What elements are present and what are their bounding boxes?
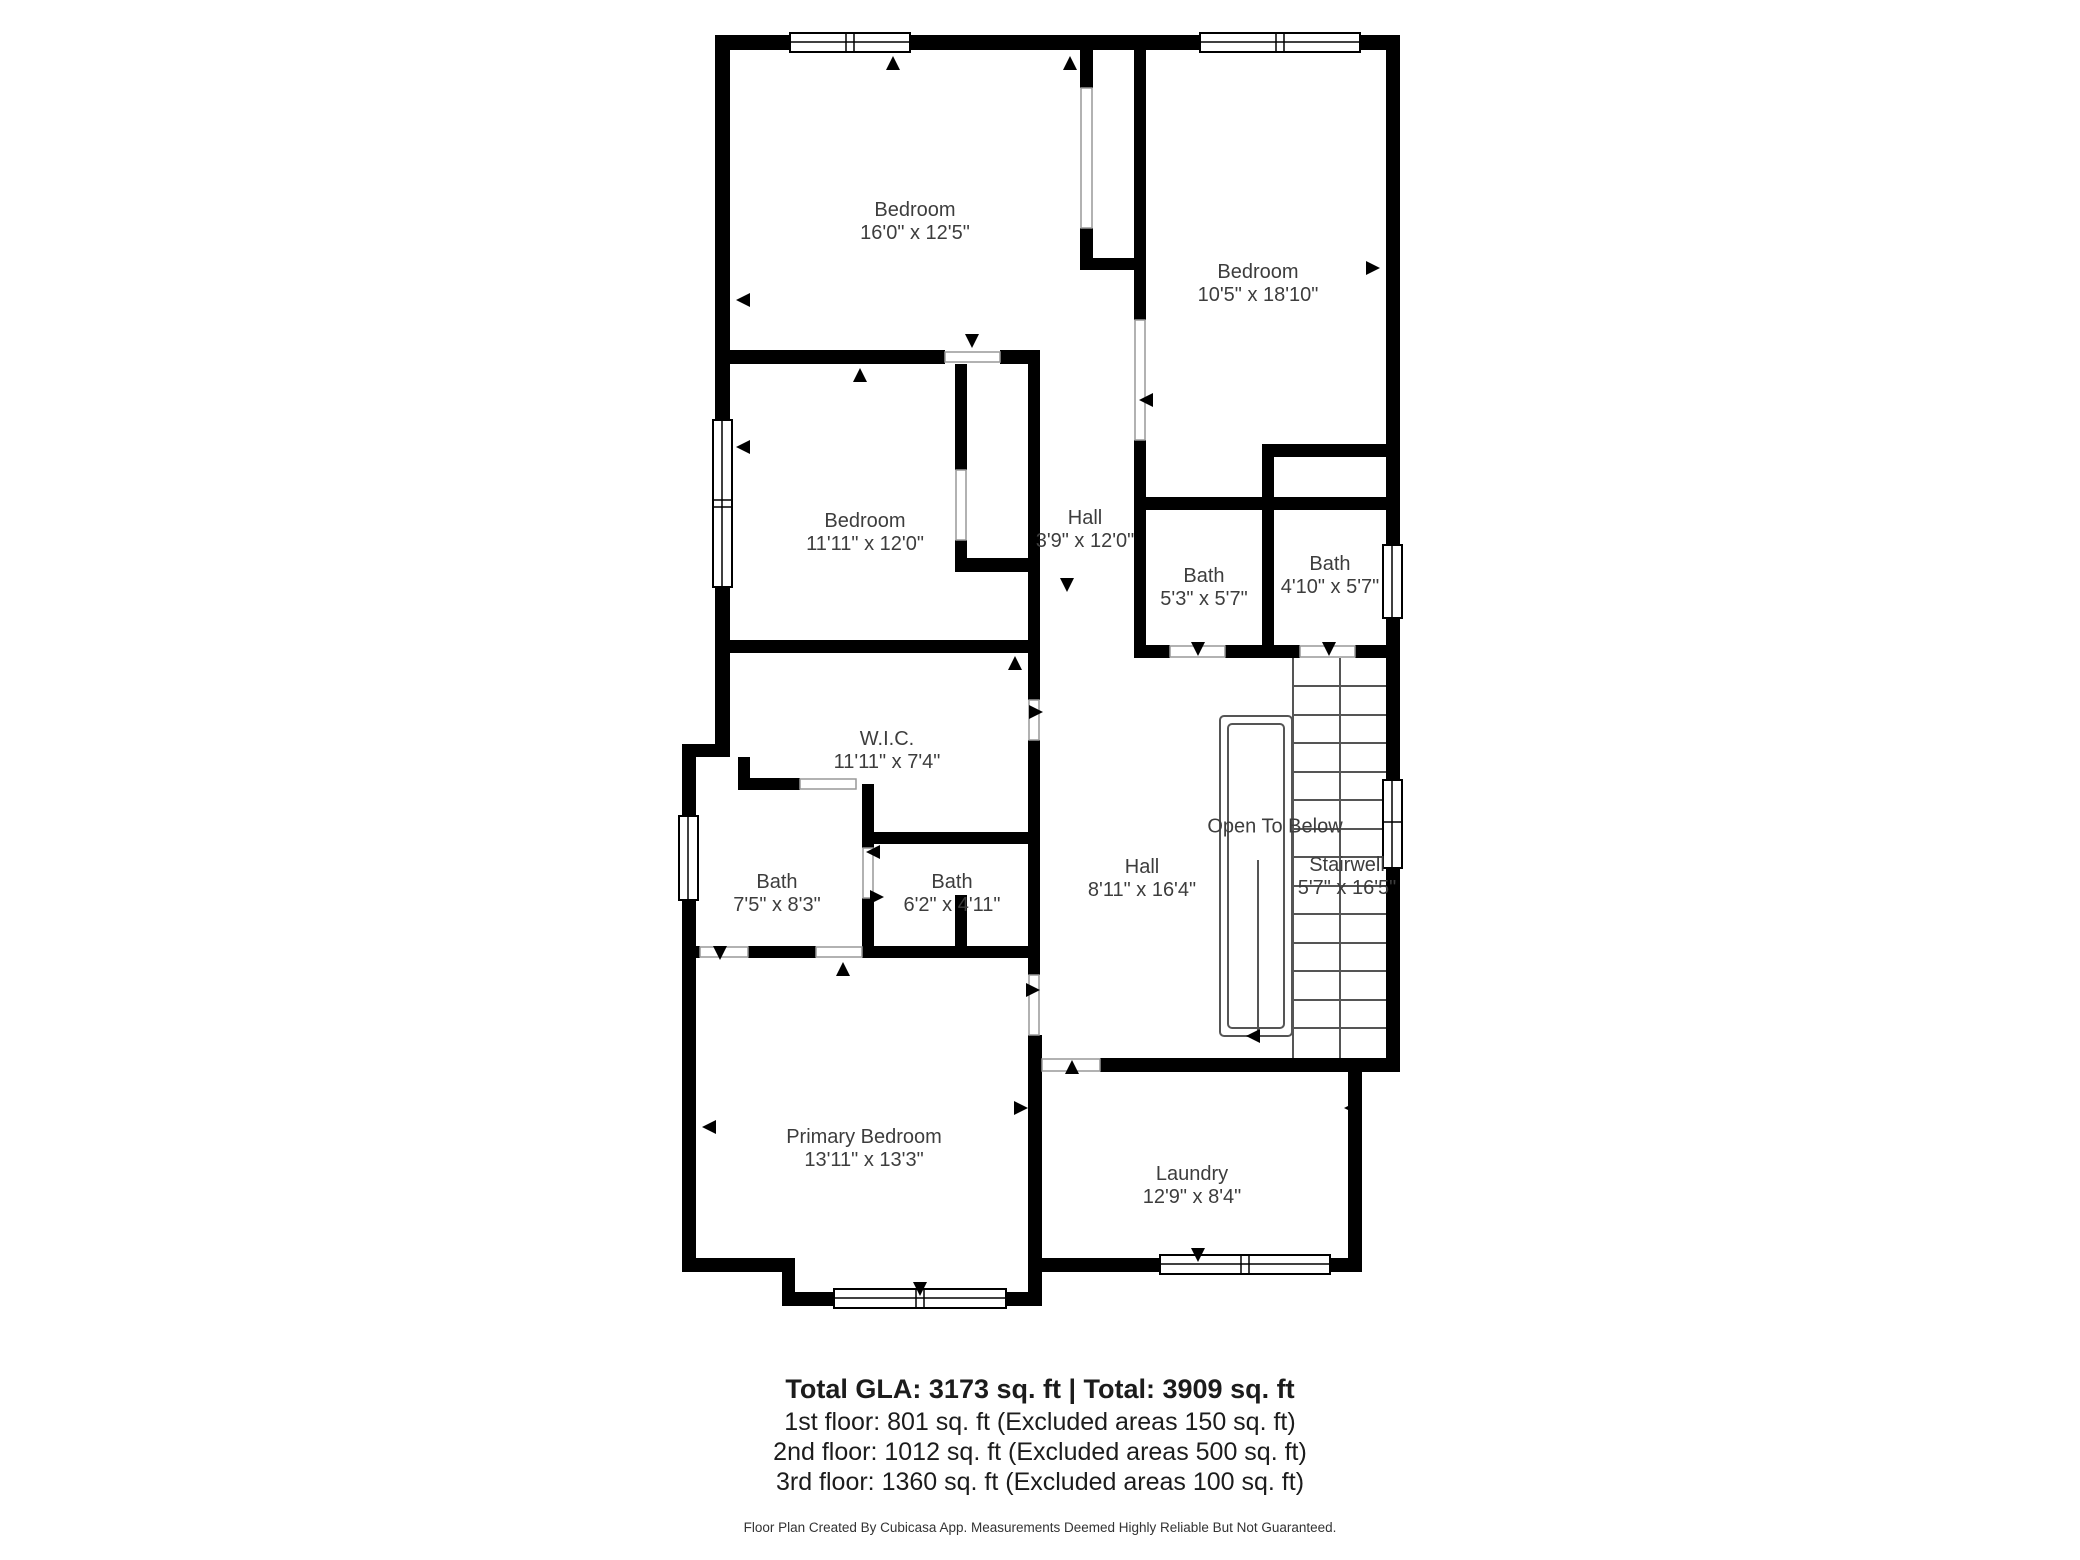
room-label-bedroom-2: Bedroom 10'5" x 18'10": [1198, 261, 1319, 307]
arrow-up-wic-wall: [1008, 656, 1022, 670]
room-dims: 5'3" x 5'7": [1160, 588, 1247, 611]
room-label-bedroom-1: Bedroom 16'0" x 12'5": [860, 199, 970, 245]
room-name: Bath: [733, 871, 820, 894]
wall-bedroom2-left-upper: [1134, 50, 1146, 320]
room-dims: 10'5" x 18'10": [1198, 284, 1319, 307]
third-floor-line: 3rd floor: 1360 sq. ft (Excluded areas 1…: [776, 1468, 1304, 1497]
arrow-down-bedroom1-door: [965, 334, 979, 348]
room-name: Bath: [1160, 565, 1247, 588]
wall-left-upper: [715, 35, 730, 757]
wall-stairhall-top-a: [1134, 645, 1170, 658]
stair-railing-inner: [1228, 724, 1284, 1028]
room-name: Bedroom: [806, 510, 924, 533]
room-name: Hall: [1088, 856, 1196, 879]
disclaimer-line: Floor Plan Created By Cubicasa App. Meas…: [744, 1520, 1337, 1535]
opening-bath-divider-door: [863, 848, 873, 898]
wall-baths-top: [1146, 497, 1386, 510]
wall-bedroom1-bottom-a: [730, 350, 945, 364]
room-label-bath-410: Bath 4'10" x 5'7": [1281, 553, 1380, 599]
room-label-bath-75: Bath 7'5" x 8'3": [733, 871, 820, 917]
wall-laundry-top: [1100, 1058, 1362, 1072]
arrow-up-suite-passage: [836, 962, 850, 976]
room-label-hall-lower: Hall 8'11" x 16'4": [1088, 856, 1196, 902]
room-label-bath-53: Bath 5'3" x 5'7": [1160, 565, 1247, 611]
room-dims: 4'10" x 5'7": [1281, 576, 1380, 599]
opening-bath1-upper-door: [800, 779, 856, 789]
room-label-bedroom-3: Bedroom 11'11" x 12'0": [806, 510, 924, 556]
room-label-primary-bedroom: Primary Bedroom 13'11" x 13'3": [786, 1126, 942, 1172]
wall-primary-laundry: [1028, 1035, 1042, 1306]
room-label-laundry: Laundry 12'9" x 8'4": [1143, 1163, 1242, 1209]
wall-stairhall-top-c: [1355, 645, 1386, 658]
total-gla-line: Total GLA: 3173 sq. ft | Total: 3909 sq.…: [785, 1374, 1294, 1405]
arrow-right-primary-laundry: [1014, 1101, 1028, 1115]
room-dims: 3'9" x 12'0": [1036, 530, 1135, 553]
opening-suite-passage: [816, 947, 862, 957]
arrow-up-bedroom2: [1063, 56, 1077, 70]
room-label-wic: W.I.C. 11'11" x 7'4": [834, 728, 941, 774]
stair-direction-line: [1250, 860, 1258, 1036]
room-dims: 8'11" x 16'4": [1088, 879, 1196, 902]
wall-bath1-zig-h: [738, 778, 800, 790]
wall-hall-left-b: [1028, 740, 1040, 975]
room-name: Laundry: [1143, 1163, 1242, 1186]
floor-plan-drawing: [0, 0, 2080, 1560]
room-label-hall-upper: Hall 3'9" x 12'0": [1036, 507, 1135, 553]
wall-nib-upper: [955, 364, 967, 470]
room-label-stairwell: Stairwell 5'7" x 16'5": [1298, 854, 1397, 900]
room-dims: 6'2" x 4'11": [903, 894, 1000, 917]
room-name: Open To Below: [1207, 816, 1342, 839]
wall-bath1-bottom-b: [748, 946, 816, 958]
arrow-right-bedroom2-wall: [1366, 261, 1380, 275]
room-name: Primary Bedroom: [786, 1126, 942, 1149]
stair-direction-arrow: [1246, 1029, 1260, 1043]
wall-stairhall-top-b: [1225, 645, 1300, 658]
arrow-up-bedroom3: [853, 368, 867, 382]
wall-bedroom2-bottom: [1262, 444, 1386, 457]
wall-nib-foot: [955, 558, 1040, 572]
arrow-left-primary-wall: [702, 1120, 716, 1134]
room-label-bath-62: Bath 6'2" x 4'11": [903, 871, 1000, 917]
opening-bedroom2-door: [1135, 320, 1145, 440]
wall-bath2-bottom: [862, 946, 1028, 958]
room-dims: 11'11" x 7'4": [834, 751, 941, 774]
room-name: Stairwell: [1298, 854, 1397, 877]
wall-bath-divider-upper: [862, 784, 874, 848]
opening-nib: [956, 470, 966, 540]
wall-bath1-bottom-a: [682, 946, 700, 958]
wall-closet-left-a: [1080, 50, 1093, 88]
room-dims: 13'11" x 13'3": [786, 1149, 942, 1172]
opening-closet: [1081, 88, 1092, 228]
arrow-left-bedroom3-window: [736, 440, 750, 454]
first-floor-line: 1st floor: 801 sq. ft (Excluded areas 15…: [784, 1408, 1295, 1437]
stair-railing-outer: [1220, 716, 1292, 1036]
opening-primary-door: [1029, 975, 1039, 1035]
room-dims: 5'7" x 16'5": [1298, 877, 1397, 900]
room-dims: 12'9" x 8'4": [1143, 1186, 1242, 1209]
wall-bath-mid: [1262, 510, 1274, 658]
room-name: Bedroom: [1198, 261, 1319, 284]
wall-laundry-right: [1348, 1058, 1362, 1272]
room-label-open-to-below: Open To Below: [1207, 816, 1342, 839]
door-openings: [700, 88, 1355, 1071]
arrow-up-bedroom1: [886, 56, 900, 70]
room-name: Bath: [903, 871, 1000, 894]
room-name: Hall: [1036, 507, 1135, 530]
room-name: Bedroom: [860, 199, 970, 222]
room-name: Bath: [1281, 553, 1380, 576]
room-dims: 16'0" x 12'5": [860, 222, 970, 245]
room-name: W.I.C.: [834, 728, 941, 751]
room-dims: 11'11" x 12'0": [806, 533, 924, 556]
floor-plan-page: Bedroom 16'0" x 12'5" Bedroom 10'5" x 18…: [0, 0, 2080, 1560]
wall-primary-bottom: [682, 1258, 795, 1272]
arrow-right-bath-divider-door: [870, 890, 884, 904]
wall-bedroom2-left-lower: [1134, 440, 1146, 658]
opening-bedroom1-door: [945, 352, 1000, 362]
wall-wic-bottom: [874, 832, 1028, 844]
arrow-down-hall-top: [1060, 578, 1074, 592]
wall-bedroom3-bottom: [730, 640, 1040, 653]
arrow-left-bedroom3-wall: [736, 293, 750, 307]
wall-bedroom1-bottom-b: [1000, 350, 1040, 364]
second-floor-line: 2nd floor: 1012 sq. ft (Excluded areas 5…: [773, 1438, 1307, 1467]
room-dims: 7'5" x 8'3": [733, 894, 820, 917]
